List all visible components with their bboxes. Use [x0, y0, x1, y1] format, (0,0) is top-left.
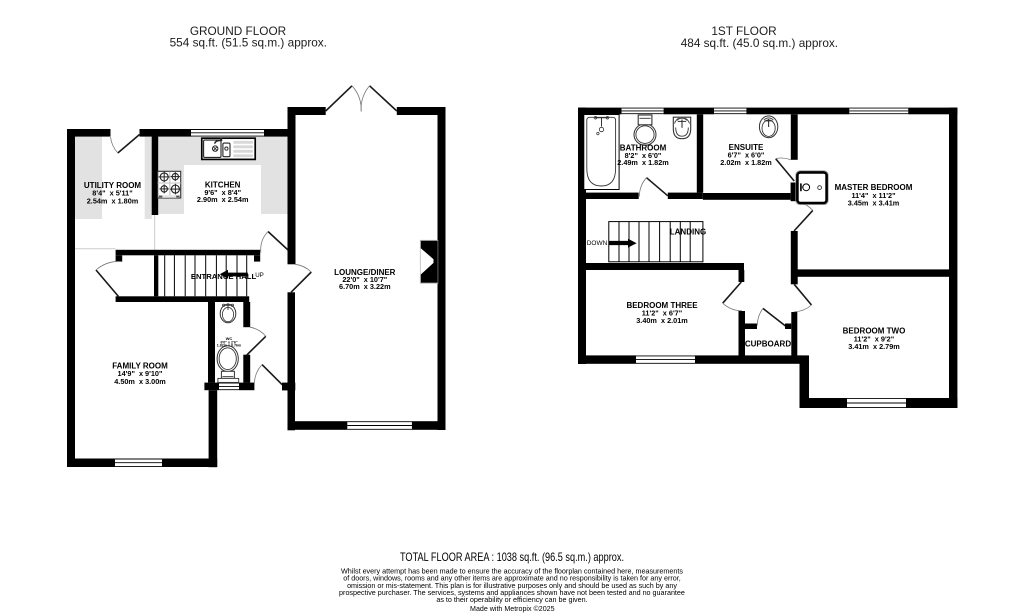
svg-text:6.70m x 3.22m: 6.70m x 3.22m	[339, 282, 391, 291]
svg-text:DOWN: DOWN	[587, 240, 608, 247]
svg-text:2.02m x 1.82m: 2.02m x 1.82m	[720, 158, 772, 167]
svg-text:as to their operability or eff: as to their operability or efficiency ca…	[436, 595, 587, 604]
svg-text:3.41m x 2.79m: 3.41m x 2.79m	[848, 342, 900, 351]
svg-text:3.40m x 2.01m: 3.40m x 2.01m	[636, 316, 688, 325]
svg-text:LANDING: LANDING	[670, 227, 706, 236]
svg-text:TOTAL FLOOR AREA : 1038 sq.ft.: TOTAL FLOOR AREA : 1038 sq.ft. (96.5 sq.…	[400, 550, 624, 564]
svg-text:CUPBOARD: CUPBOARD	[745, 340, 791, 349]
svg-text:1.82m x 0.76m: 1.82m x 0.76m	[217, 344, 241, 348]
svg-text:554 sq.ft. (51.5 sq.m.) approx: 554 sq.ft. (51.5 sq.m.) approx.	[170, 36, 327, 50]
svg-text:UP: UP	[255, 272, 264, 279]
svg-text:2.49m x 1.82m: 2.49m x 1.82m	[617, 158, 669, 167]
svg-text:Made with Metropix ©2025: Made with Metropix ©2025	[470, 604, 555, 613]
svg-text:4.50m x 3.00m: 4.50m x 3.00m	[114, 377, 166, 386]
svg-text:2.90m x 2.54m: 2.90m x 2.54m	[197, 195, 249, 204]
svg-text:484 sq.ft. (45.0 sq.m.) approx: 484 sq.ft. (45.0 sq.m.) approx.	[681, 36, 838, 50]
svg-text:2.54m x 1.80m: 2.54m x 1.80m	[87, 196, 139, 205]
svg-text:3.45m x 3.41m: 3.45m x 3.41m	[848, 199, 900, 208]
